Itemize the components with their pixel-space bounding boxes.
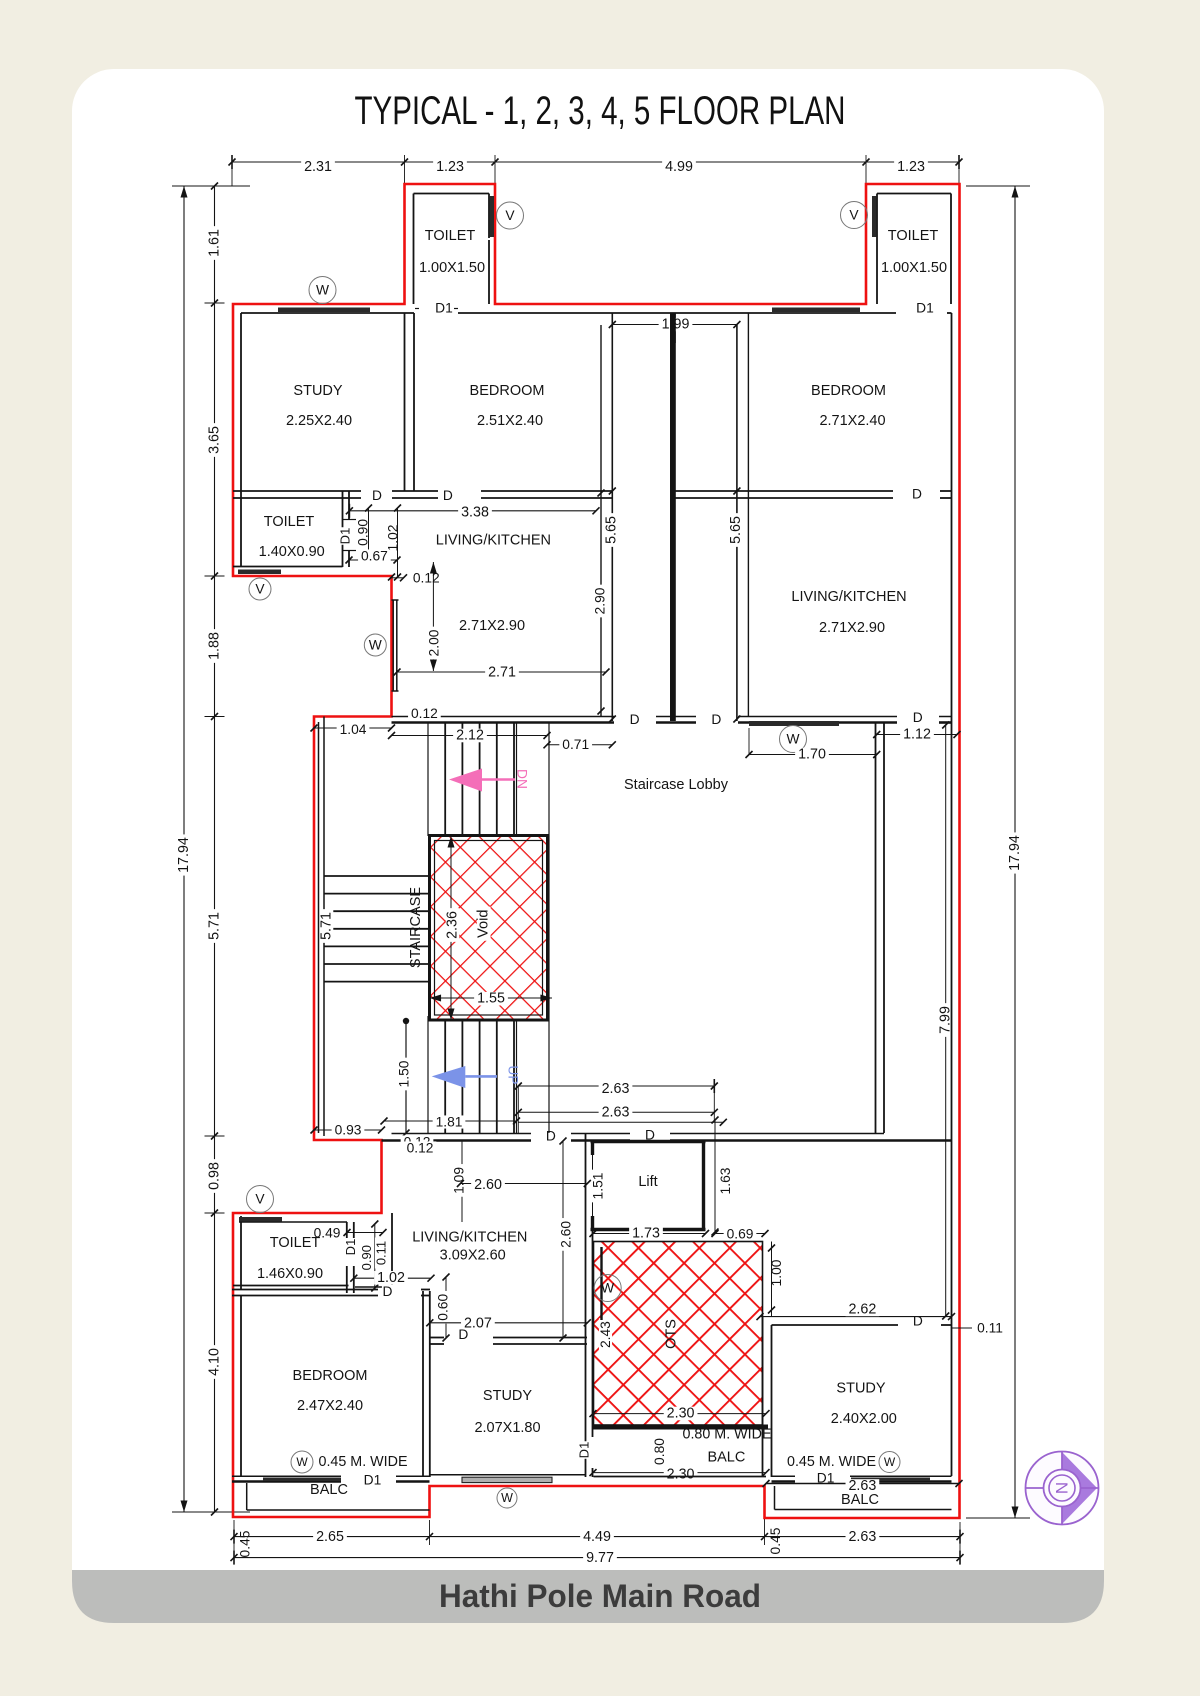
svg-text:DN: DN	[515, 769, 530, 789]
svg-text:2.07X1.80: 2.07X1.80	[474, 1420, 540, 1436]
svg-text:0.45 M. WIDE: 0.45 M. WIDE	[319, 1454, 408, 1470]
svg-text:D: D	[458, 1327, 468, 1342]
svg-text:2.65: 2.65	[316, 1529, 344, 1545]
svg-text:3.38: 3.38	[461, 505, 489, 521]
svg-text:2.62: 2.62	[848, 1301, 876, 1317]
svg-text:TOILET: TOILET	[264, 514, 315, 530]
svg-text:LIVING/KITCHEN: LIVING/KITCHEN	[412, 1229, 527, 1245]
svg-text:W: W	[601, 1281, 614, 1296]
svg-text:1.73: 1.73	[632, 1226, 660, 1242]
svg-text:D: D	[913, 1314, 923, 1329]
svg-text:V: V	[255, 1192, 265, 1207]
svg-text:Hathi Pole Main Road: Hathi Pole Main Road	[439, 1578, 761, 1614]
svg-text:1.50: 1.50	[397, 1060, 412, 1087]
svg-text:2.12: 2.12	[456, 728, 484, 744]
svg-text:BEDROOM: BEDROOM	[470, 383, 545, 399]
svg-text:1.00X1.50: 1.00X1.50	[419, 260, 485, 276]
svg-text:1.70: 1.70	[798, 747, 826, 763]
svg-text:5.65: 5.65	[728, 516, 744, 544]
svg-text:D: D	[711, 712, 721, 727]
svg-text:0.93: 0.93	[335, 1123, 362, 1138]
svg-text:BEDROOM: BEDROOM	[811, 383, 886, 399]
svg-text:D: D	[912, 487, 922, 502]
svg-text:1.40X0.90: 1.40X0.90	[259, 544, 325, 560]
svg-text:1.61: 1.61	[207, 229, 223, 257]
svg-text:STUDY: STUDY	[293, 383, 342, 399]
svg-text:W: W	[316, 283, 329, 298]
svg-text:0.45: 0.45	[768, 1527, 783, 1554]
svg-text:W: W	[369, 638, 382, 653]
svg-text:D: D	[546, 1129, 556, 1144]
svg-text:D: D	[630, 712, 640, 727]
svg-text:D1: D1	[338, 528, 353, 545]
svg-text:0.80: 0.80	[652, 1438, 667, 1465]
svg-text:0.80 M. WIDE: 0.80 M. WIDE	[683, 1426, 772, 1442]
svg-text:0.49: 0.49	[314, 1226, 341, 1241]
svg-text:0.45 M. WIDE: 0.45 M. WIDE	[787, 1454, 876, 1470]
svg-text:0.69: 0.69	[727, 1227, 754, 1242]
svg-text:0.60: 0.60	[435, 1294, 450, 1321]
svg-text:2.25X2.40: 2.25X2.40	[286, 413, 352, 429]
svg-text:2.51X2.40: 2.51X2.40	[477, 413, 543, 429]
svg-text:2.40X2.00: 2.40X2.00	[831, 1411, 897, 1427]
svg-text:2.30: 2.30	[667, 1466, 695, 1482]
svg-text:2.90: 2.90	[593, 587, 608, 614]
svg-text:D1: D1	[435, 301, 453, 316]
svg-text:0.98: 0.98	[207, 1162, 223, 1190]
svg-text:1.63: 1.63	[718, 1167, 733, 1194]
svg-text:17.94: 17.94	[1007, 835, 1023, 871]
svg-text:2.36: 2.36	[445, 911, 461, 939]
svg-text:0.90: 0.90	[359, 1245, 374, 1270]
svg-text:STUDY: STUDY	[483, 1388, 532, 1404]
svg-text:D: D	[372, 488, 382, 503]
svg-text:2.63: 2.63	[848, 1478, 876, 1494]
svg-text:TOILET: TOILET	[425, 228, 476, 244]
svg-text:0.11: 0.11	[977, 1321, 1003, 1336]
svg-text:Staircase Lobby: Staircase Lobby	[624, 777, 729, 793]
svg-text:W: W	[501, 1491, 513, 1505]
svg-text:D: D	[913, 710, 923, 725]
svg-text:OTS: OTS	[664, 1319, 680, 1349]
svg-text:W: W	[786, 732, 799, 747]
svg-text:1.46X0.90: 1.46X0.90	[257, 1266, 323, 1282]
svg-text:D1: D1	[577, 1442, 592, 1459]
svg-text:TOILET: TOILET	[888, 228, 939, 244]
svg-text:1.55: 1.55	[477, 991, 505, 1007]
svg-text:0.12: 0.12	[407, 1141, 434, 1156]
svg-text:3.65: 3.65	[207, 426, 223, 454]
svg-text:9.77: 9.77	[586, 1550, 614, 1566]
svg-text:V: V	[255, 582, 265, 597]
svg-text:2.63: 2.63	[848, 1529, 876, 1545]
svg-text:1.00: 1.00	[769, 1259, 784, 1286]
svg-text:D1: D1	[916, 301, 934, 316]
svg-text:V: V	[505, 208, 515, 223]
svg-text:1.81: 1.81	[436, 1115, 463, 1130]
svg-text:2.60: 2.60	[474, 1177, 502, 1193]
svg-text:2.71X2.90: 2.71X2.90	[459, 618, 525, 634]
svg-text:0.67: 0.67	[361, 549, 388, 564]
svg-text:1.23: 1.23	[897, 159, 925, 175]
svg-text:2.47X2.40: 2.47X2.40	[297, 1398, 363, 1414]
svg-text:5.65: 5.65	[604, 516, 620, 544]
svg-text:2.63: 2.63	[602, 1105, 630, 1121]
svg-text:2.60: 2.60	[559, 1221, 574, 1248]
svg-text:N: N	[1053, 1482, 1072, 1494]
svg-text:1.02: 1.02	[385, 525, 400, 552]
svg-text:BALC: BALC	[707, 1449, 745, 1465]
svg-text:0.71: 0.71	[562, 737, 589, 752]
svg-text:4.49: 4.49	[583, 1529, 611, 1545]
svg-text:D1: D1	[343, 1239, 358, 1256]
svg-text:2.71: 2.71	[488, 665, 516, 681]
svg-text:D: D	[383, 1284, 393, 1299]
svg-text:UP: UP	[506, 1065, 521, 1084]
svg-text:2.71X2.90: 2.71X2.90	[819, 620, 885, 636]
svg-text:2.63: 2.63	[602, 1081, 630, 1097]
svg-text:4.10: 4.10	[207, 1348, 223, 1376]
svg-text:D: D	[443, 488, 453, 503]
svg-text:2.31: 2.31	[304, 159, 332, 175]
svg-text:2.30: 2.30	[667, 1406, 695, 1422]
svg-text:BALC: BALC	[310, 1482, 348, 1498]
svg-text:LIVING/KITCHEN: LIVING/KITCHEN	[791, 589, 906, 605]
svg-text:W: W	[884, 1455, 896, 1469]
svg-text:STAIRCASE: STAIRCASE	[408, 887, 424, 968]
svg-text:LIVING/KITCHEN: LIVING/KITCHEN	[436, 532, 551, 548]
svg-text:1.51: 1.51	[591, 1173, 606, 1200]
svg-text:2.43: 2.43	[598, 1321, 613, 1348]
svg-text:0.11: 0.11	[374, 1241, 389, 1265]
svg-text:1.00X1.50: 1.00X1.50	[881, 260, 947, 276]
svg-text:D1: D1	[364, 1473, 382, 1488]
svg-text:5.71: 5.71	[207, 912, 223, 940]
svg-text:BEDROOM: BEDROOM	[293, 1368, 368, 1384]
svg-text:3.09X2.60: 3.09X2.60	[440, 1248, 506, 1264]
svg-text:2.71X2.40: 2.71X2.40	[819, 413, 885, 429]
svg-text:V: V	[849, 208, 859, 223]
svg-text:17.94: 17.94	[176, 837, 192, 873]
svg-text:STUDY: STUDY	[836, 1381, 885, 1397]
svg-text:BALC: BALC	[841, 1492, 879, 1508]
svg-text:Void: Void	[476, 910, 492, 938]
svg-text:1.04: 1.04	[340, 722, 367, 737]
svg-text:1.23: 1.23	[436, 159, 464, 175]
svg-text:1.88: 1.88	[207, 632, 223, 660]
svg-text:2.00: 2.00	[427, 629, 442, 656]
svg-text:5.71: 5.71	[319, 912, 335, 940]
svg-text:0.45: 0.45	[238, 1530, 253, 1557]
svg-text:1.09: 1.09	[452, 1167, 467, 1194]
svg-text:0.12: 0.12	[411, 706, 438, 721]
svg-text:4.99: 4.99	[665, 159, 693, 175]
svg-text:0.90: 0.90	[356, 519, 371, 546]
svg-text:TYPICAL - 1, 2, 3, 4, 5 FLOOR: TYPICAL - 1, 2, 3, 4, 5 FLOOR PLAN	[355, 89, 846, 133]
svg-text:1.12: 1.12	[903, 727, 931, 743]
svg-text:W: W	[296, 1455, 308, 1469]
svg-text:Lift: Lift	[638, 1174, 657, 1190]
